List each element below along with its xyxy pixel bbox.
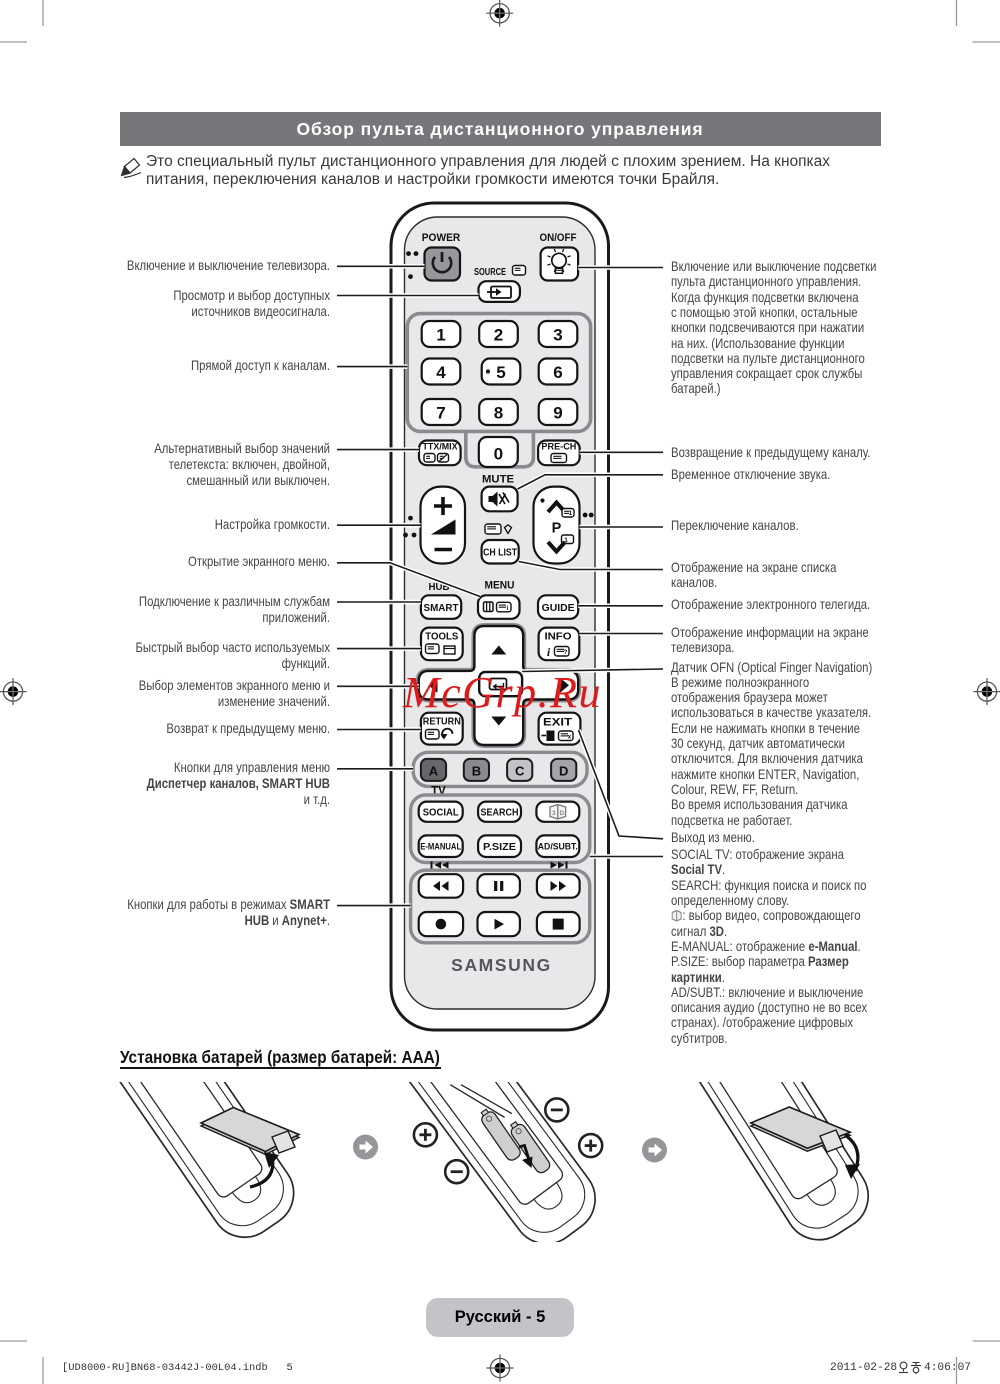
svg-text:RETURN: RETURN [423, 717, 461, 728]
svg-text:7: 7 [436, 404, 445, 423]
svg-text:B: B [472, 764, 481, 779]
svg-text:2: 2 [494, 326, 503, 345]
svg-text:D: D [559, 810, 564, 817]
svg-text:GUIDE: GUIDE [542, 603, 575, 614]
svg-text:x: x [568, 734, 572, 741]
svg-text:3: 3 [552, 810, 556, 817]
svg-text:3: 3 [553, 326, 562, 345]
svg-text:D: D [559, 764, 568, 779]
svg-text:i: i [506, 605, 508, 612]
svg-text:CH LIST: CH LIST [483, 548, 517, 559]
svg-text:TTX/MIX: TTX/MIX [423, 442, 459, 452]
svg-text:E-MANUAL: E-MANUAL [420, 842, 461, 852]
svg-text:SAMSUNG: SAMSUNG [451, 955, 552, 975]
svg-text:ON/OFF: ON/OFF [540, 232, 577, 244]
svg-text:POWER: POWER [422, 232, 461, 244]
svg-text:P.SIZE: P.SIZE [483, 842, 516, 853]
svg-text:?: ? [563, 649, 567, 656]
svg-text:0: 0 [494, 445, 503, 464]
svg-text:6: 6 [553, 363, 562, 382]
svg-text:1: 1 [569, 510, 573, 517]
svg-text:C: C [515, 764, 525, 779]
svg-text:SMART: SMART [424, 603, 460, 614]
svg-text:INFO: INFO [545, 632, 572, 643]
svg-text:EXIT: EXIT [543, 717, 572, 729]
svg-text:SOURCE: SOURCE [474, 267, 506, 278]
svg-text:TOOLS: TOOLS [425, 632, 458, 643]
svg-text:A: A [429, 764, 439, 779]
svg-text:AD/SUBT.: AD/SUBT. [538, 842, 578, 852]
svg-text:SOCIAL: SOCIAL [423, 808, 459, 819]
svg-text:4: 4 [436, 363, 446, 382]
svg-text:1: 1 [436, 326, 445, 345]
svg-text:SEARCH: SEARCH [481, 808, 519, 819]
svg-text:MENU: MENU [485, 580, 515, 592]
svg-text:P: P [552, 521, 562, 537]
svg-text:5: 5 [496, 363, 505, 382]
svg-text:8: 8 [494, 404, 503, 423]
svg-text:9: 9 [553, 404, 562, 423]
svg-text:MUTE: MUTE [482, 474, 514, 486]
svg-text:PRE-CH: PRE-CH [541, 442, 576, 453]
